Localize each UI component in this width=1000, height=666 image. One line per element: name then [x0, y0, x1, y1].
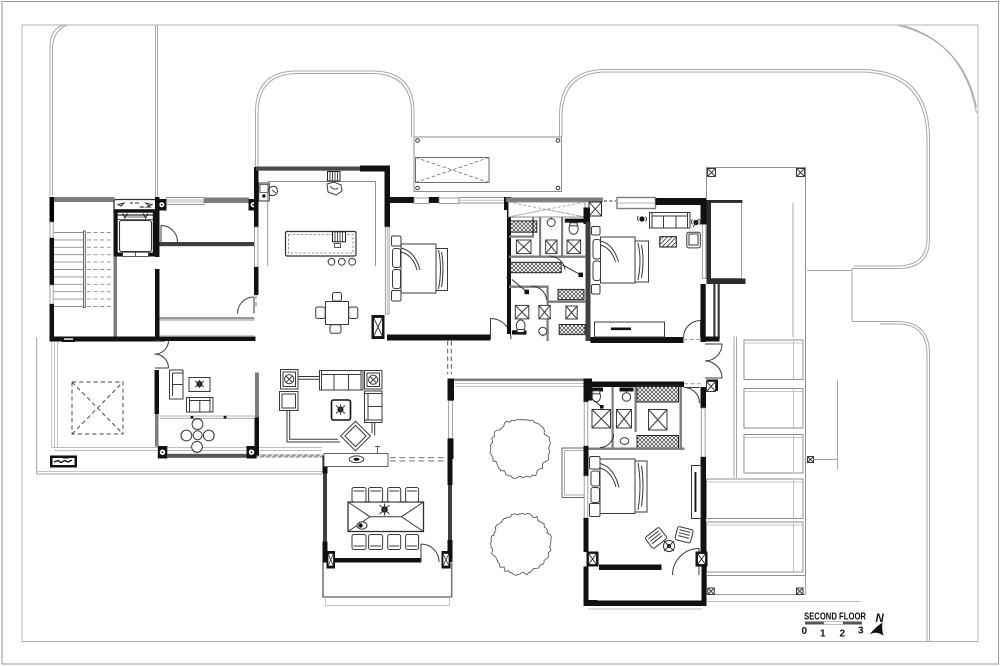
svg-text:3: 3	[858, 626, 864, 637]
svg-text:SECOND FLOOR: SECOND FLOOR	[804, 611, 866, 623]
svg-text:N: N	[876, 613, 885, 625]
svg-text:2: 2	[840, 629, 846, 640]
svg-text:0: 0	[802, 626, 808, 637]
svg-text:1: 1	[820, 629, 826, 640]
